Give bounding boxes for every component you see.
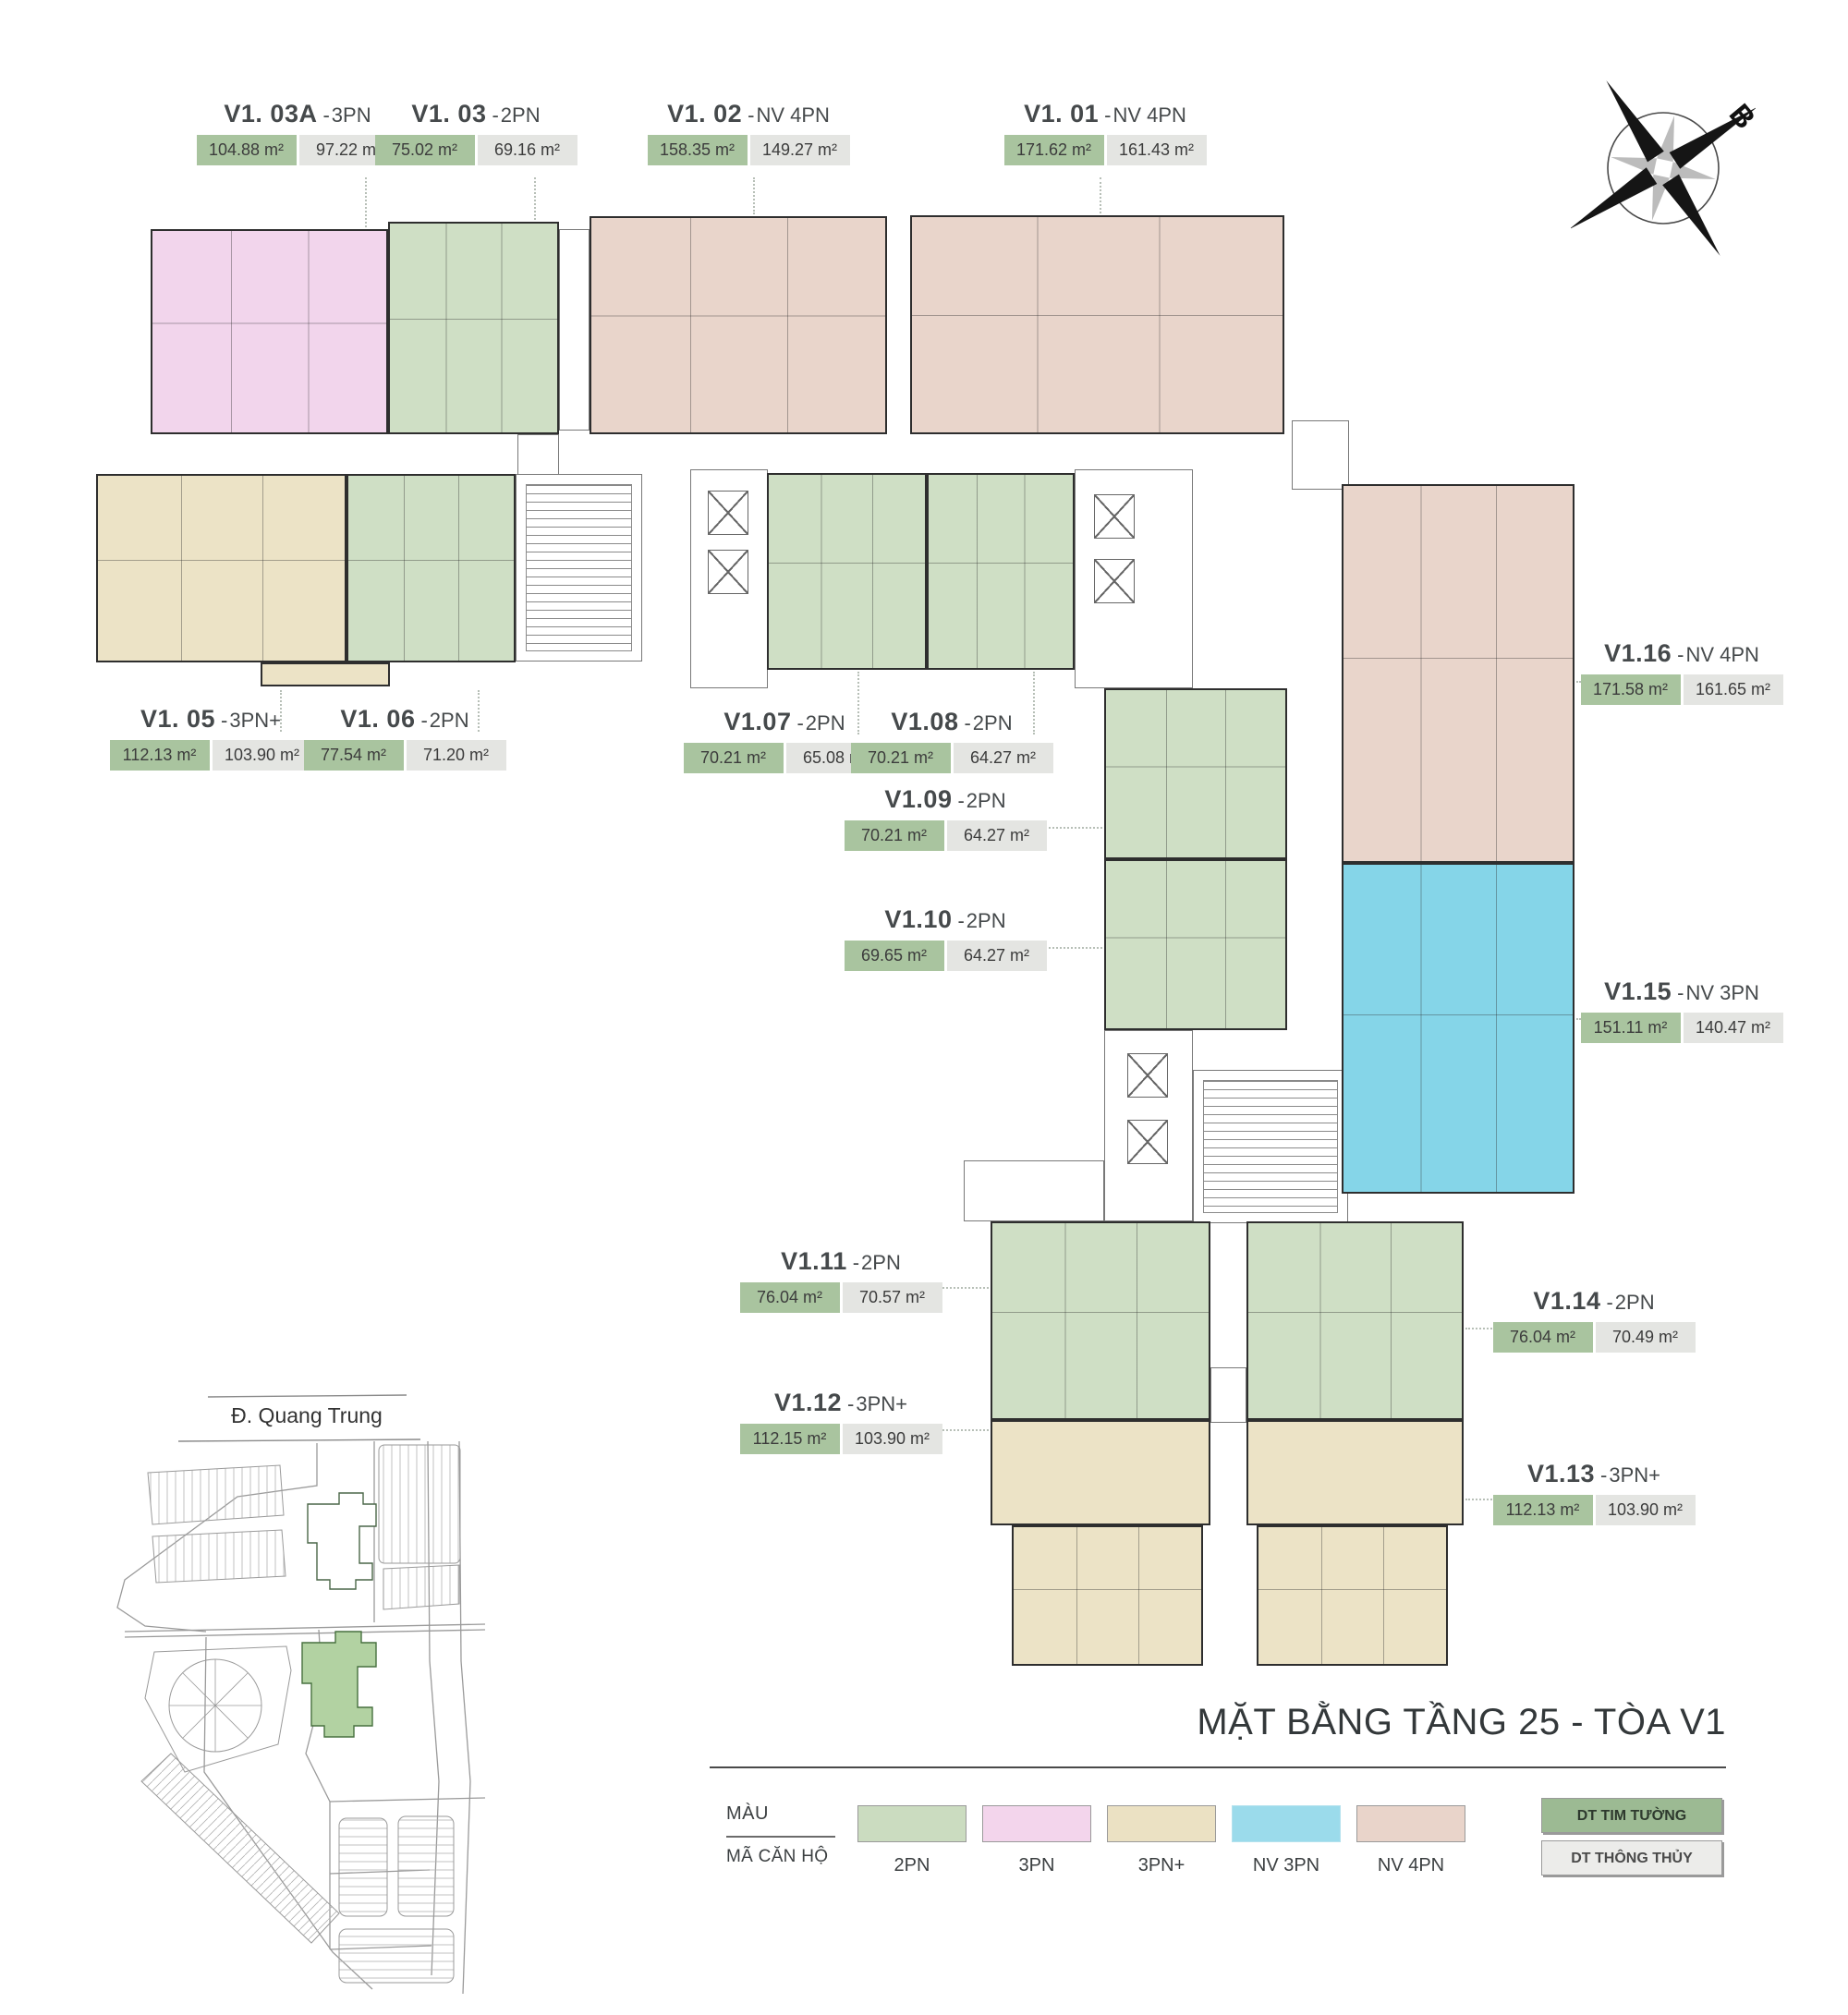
legend-label-nv4pn: NV 4PN [1356, 1855, 1465, 1876]
elevator-icon [1094, 494, 1135, 539]
gross-area-chip: 158.35 m² [648, 135, 748, 165]
street-label: Đ. Quang Trung [231, 1403, 383, 1427]
core-shaft-top [559, 229, 590, 431]
net-area-chip: 103.90 m² [843, 1424, 942, 1454]
unit-footprint-v1-11 [991, 1221, 1210, 1420]
unit-title: V1. 03-2PN [328, 100, 624, 128]
legend-label-3pn-plus: 3PN+ [1107, 1855, 1216, 1876]
leader-line [534, 177, 536, 220]
unit-title: V1. 02-NV 4PN [601, 100, 896, 128]
unit-title: V1.10-2PN [797, 905, 1093, 934]
legend-swatch-2pn [857, 1805, 967, 1842]
gross-area-chip: 70.21 m² [851, 743, 951, 773]
divider [726, 1836, 835, 1838]
leader-line [365, 177, 367, 227]
gross-area-chip: 112.13 m² [110, 740, 210, 771]
legend-label-2pn: 2PN [857, 1855, 967, 1876]
net-area-chip: 70.57 m² [843, 1282, 942, 1313]
unit-label-v1-01: V1. 01-NV 4PN 171.62 m²161.43 m² [957, 100, 1253, 165]
core-bridge [1210, 1367, 1246, 1423]
unit-title: V1.12-3PN+ [693, 1389, 989, 1417]
gross-area-chip: 171.62 m² [1004, 135, 1104, 165]
gross-area-chip: 76.04 m² [740, 1282, 840, 1313]
unit-title: V1.08-2PN [804, 708, 1100, 736]
core-corridor [964, 1160, 1104, 1221]
legend-label-nv3pn: NV 3PN [1232, 1855, 1341, 1876]
unit-footprint-v1-09 [1104, 688, 1287, 859]
legend-key: MÀU MÃ CĂN HỘ [726, 1803, 856, 1867]
core-connector-east [1292, 420, 1349, 490]
unit-title: V1.13-3PN+ [1446, 1460, 1742, 1488]
unit-title: V1.16-NV 4PN [1534, 639, 1830, 668]
gross-area-chip: 112.15 m² [740, 1424, 840, 1454]
gross-area-chip: 151.11 m² [1581, 1013, 1681, 1043]
tower-v1-footprint-highlight [302, 1632, 376, 1737]
unit-footprint-v1-13-upper [1246, 1420, 1464, 1525]
unit-title: V1.15-NV 3PN [1534, 977, 1830, 1006]
unit-footprint-v1-05 [96, 474, 346, 662]
gross-area-chip: 77.54 m² [304, 740, 404, 771]
divider [710, 1766, 1726, 1768]
unit-label-v1-11: V1.11-2PN 76.04 m²70.57 m² [693, 1247, 989, 1313]
unit-footprint-v1-10 [1104, 859, 1287, 1030]
tower-outline-footprint [308, 1493, 376, 1589]
unit-label-v1-16: V1.16-NV 4PN 171.58 m²161.65 m² [1534, 639, 1830, 705]
legend-swatch-3pn-plus [1107, 1805, 1216, 1842]
gross-area-chip: 76.04 m² [1493, 1322, 1593, 1353]
leader-line [753, 177, 755, 214]
net-area-chip: 71.20 m² [407, 740, 506, 771]
elevator-icon [708, 550, 748, 594]
unit-label-v1-06: V1. 06-2PN 77.54 m²71.20 m² [257, 705, 553, 771]
unit-footprint-v1-12 [1012, 1525, 1203, 1666]
elevator-icon [1127, 1053, 1168, 1098]
stairs-icon [526, 484, 632, 651]
gross-area-chip: 69.65 m² [845, 941, 944, 971]
page-title: MẶT BẰNG TẦNG 25 - TÒA V1 [1197, 1702, 1726, 1743]
net-area-chip: 64.27 m² [947, 820, 1047, 851]
net-area-chip: 70.49 m² [1596, 1322, 1696, 1353]
core-lifts-south [1104, 1030, 1193, 1221]
gross-area-chip: 70.21 m² [684, 743, 784, 773]
unit-label-v1-02: V1. 02-NV 4PN 158.35 m²149.27 m² [601, 100, 896, 165]
unit-footprint-v1-06 [346, 474, 516, 662]
unit-label-v1-12: V1.12-3PN+ 112.15 m²103.90 m² [693, 1389, 989, 1454]
unit-title: V1. 06-2PN [257, 705, 553, 734]
unit-balcony-v1-05 [261, 662, 390, 686]
unit-footprint-v1-07 [767, 473, 927, 670]
core-lifts-center [1075, 469, 1193, 688]
legend-swatch-3pn [982, 1805, 1091, 1842]
core-stairs-west [516, 474, 642, 662]
unit-footprint-v1-03 [388, 222, 559, 434]
unit-title: V1.14-2PN [1446, 1287, 1742, 1316]
legend-code-label: MÃ CĂN HỘ [726, 1847, 856, 1867]
elevator-icon [1127, 1120, 1168, 1164]
legend-swatch-nv3pn [1232, 1805, 1341, 1842]
legend-label-3pn: 3PN [982, 1855, 1091, 1876]
core-lifts-west [690, 469, 768, 688]
unit-label-v1-15: V1.15-NV 3PN 151.11 m²140.47 m² [1534, 977, 1830, 1043]
floor-plan-page: V1. 03A-3PN 104.88 m²97.22 m² V1. 03-2PN… [0, 0, 1848, 2015]
net-area-chip: 64.27 m² [954, 743, 1053, 773]
gross-area-chip: 70.21 m² [845, 820, 944, 851]
unit-label-v1-09: V1.09-2PN 70.21 m²64.27 m² [797, 785, 1093, 851]
unit-title: V1.09-2PN [797, 785, 1093, 814]
unit-label-v1-08: V1.08-2PN 70.21 m²64.27 m² [804, 708, 1100, 773]
unit-footprint-v1-01 [910, 215, 1284, 434]
badge-net-area: DT THÔNG THỦY [1541, 1840, 1722, 1875]
unit-title: V1.11-2PN [693, 1247, 989, 1276]
net-area-chip: 69.16 m² [478, 135, 577, 165]
stairs-icon [1203, 1080, 1338, 1213]
legend-swatch-nv4pn [1356, 1805, 1465, 1842]
gross-area-chip: 75.02 m² [375, 135, 475, 165]
net-area-chip: 161.65 m² [1684, 674, 1783, 705]
core-connector [517, 434, 559, 475]
unit-label-v1-13: V1.13-3PN+ 112.13 m²103.90 m² [1446, 1460, 1742, 1525]
unit-footprint-v1-14 [1246, 1221, 1464, 1420]
net-area-chip: 149.27 m² [750, 135, 850, 165]
unit-footprint-v1-08 [927, 473, 1075, 670]
net-area-chip: 64.27 m² [947, 941, 1047, 971]
net-area-chip: 140.47 m² [1684, 1013, 1783, 1043]
unit-footprint-v1-12-upper [991, 1420, 1210, 1525]
unit-footprint-v1-03a [151, 229, 388, 434]
site-map: Đ. Quang Trung [97, 1384, 494, 2003]
gross-area-chip: 104.88 m² [197, 135, 297, 165]
legend-color-label: MÀU [726, 1803, 856, 1825]
unit-footprint-v1-02 [590, 216, 887, 434]
core-stairs-south [1193, 1070, 1348, 1223]
unit-footprint-v1-13 [1257, 1525, 1448, 1666]
elevator-icon [1094, 559, 1135, 603]
net-area-chip: 161.43 m² [1107, 135, 1207, 165]
unit-title: V1. 01-NV 4PN [957, 100, 1253, 128]
unit-label-v1-14: V1.14-2PN 76.04 m²70.49 m² [1446, 1287, 1742, 1353]
unit-label-v1-10: V1.10-2PN 69.65 m²64.27 m² [797, 905, 1093, 971]
leader-line [1100, 177, 1101, 213]
compass-icon: B [1571, 76, 1756, 261]
net-area-chip: 103.90 m² [1596, 1495, 1696, 1525]
gross-area-chip: 112.13 m² [1493, 1495, 1593, 1525]
badge-gross-area: DT TIM TƯỜNG [1541, 1798, 1722, 1833]
elevator-icon [708, 491, 748, 535]
gross-area-chip: 171.58 m² [1581, 674, 1681, 705]
unit-label-v1-03: V1. 03-2PN 75.02 m²69.16 m² [328, 100, 624, 165]
